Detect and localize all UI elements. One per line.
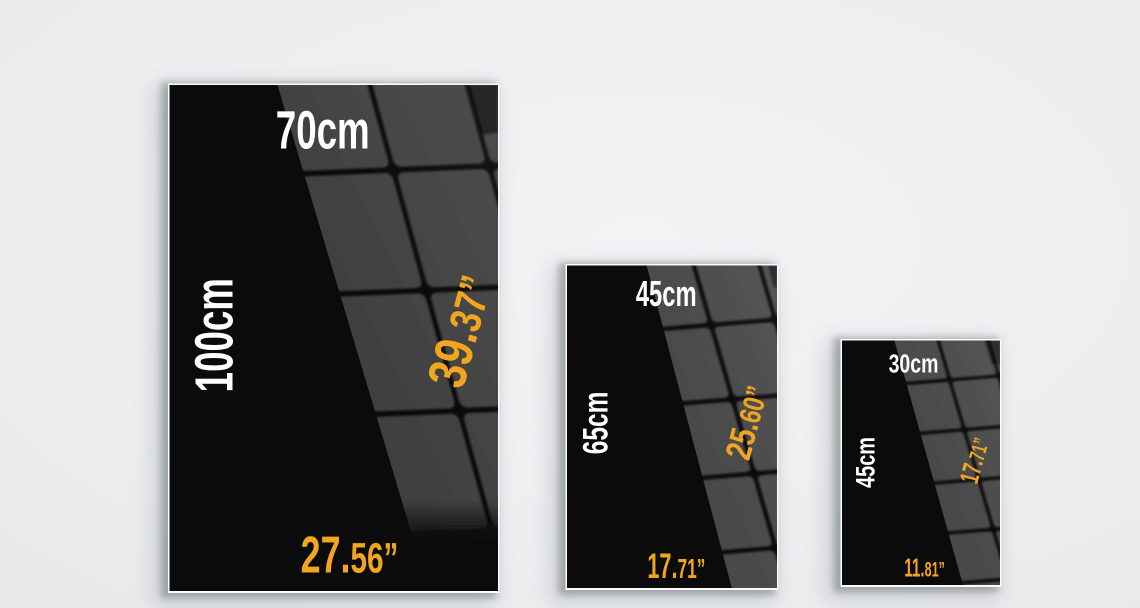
svg-text:30cm: 30cm: [889, 349, 939, 378]
svg-text:27.56”: 27.56”: [301, 527, 399, 584]
svg-text:45cm: 45cm: [851, 437, 880, 488]
svg-text:65cm: 65cm: [577, 392, 615, 455]
svg-text:45cm: 45cm: [636, 274, 697, 314]
svg-text:70cm: 70cm: [276, 99, 370, 160]
svg-text:17.71”: 17.71”: [647, 548, 705, 586]
svg-text:11.81”: 11.81”: [904, 555, 945, 583]
svg-text:100cm: 100cm: [183, 278, 244, 392]
